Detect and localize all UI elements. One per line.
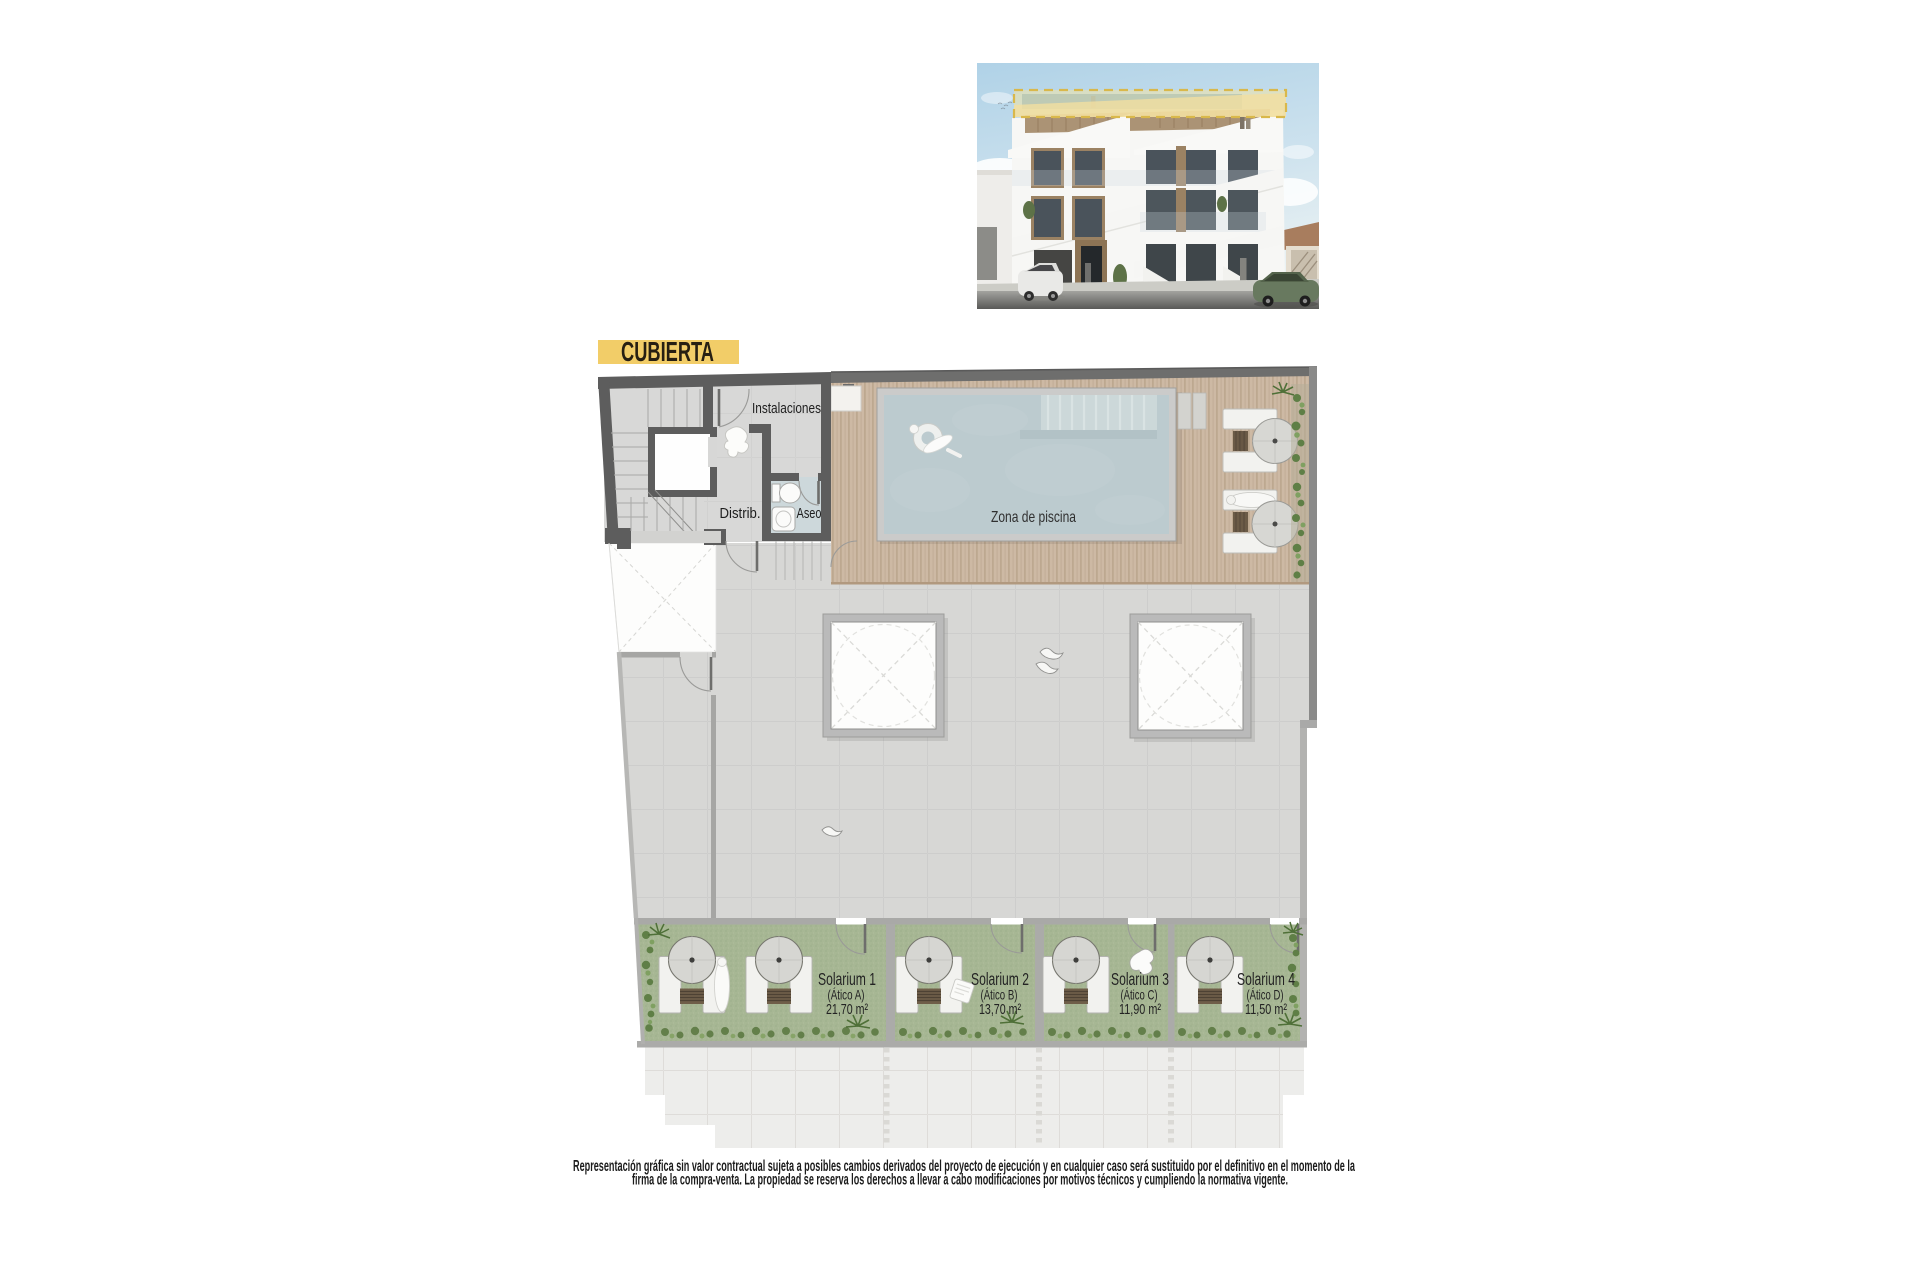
svg-text:Distrib.: Distrib. (720, 505, 761, 522)
svg-text:11,50 m²: 11,50 m² (1245, 1001, 1287, 1018)
svg-text:firma de la compra-venta. La p: firma de la compra-venta. La propiedad s… (632, 1172, 1288, 1189)
svg-text:CUBIERTA: CUBIERTA (621, 336, 714, 367)
svg-text:11,90 m²: 11,90 m² (1119, 1001, 1161, 1018)
svg-text:21,70 m²: 21,70 m² (826, 1001, 868, 1018)
svg-text:Instalaciones: Instalaciones (752, 400, 821, 417)
svg-text:13,70 m²: 13,70 m² (979, 1001, 1021, 1018)
svg-text:Aseo: Aseo (797, 505, 822, 522)
svg-text:Zona de piscina: Zona de piscina (991, 509, 1076, 526)
